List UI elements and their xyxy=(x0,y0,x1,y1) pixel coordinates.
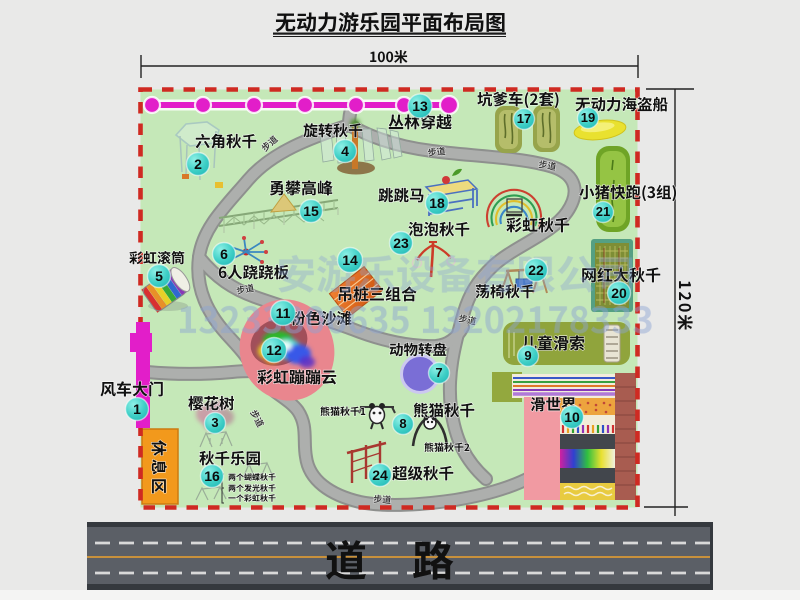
svg-text:18: 18 xyxy=(429,195,445,211)
svg-text:19: 19 xyxy=(581,110,595,125)
svg-text:1: 1 xyxy=(133,401,141,417)
svg-text:10: 10 xyxy=(564,409,580,425)
svg-text:8: 8 xyxy=(399,416,406,431)
svg-text:20: 20 xyxy=(611,285,627,301)
svg-text:12: 12 xyxy=(266,342,282,358)
svg-text:21: 21 xyxy=(596,204,610,219)
svg-text:2: 2 xyxy=(194,156,202,172)
svg-text:11: 11 xyxy=(276,305,291,321)
svg-text:14: 14 xyxy=(342,252,358,268)
svg-text:17: 17 xyxy=(517,111,531,126)
svg-text:6: 6 xyxy=(220,246,228,262)
svg-text:16: 16 xyxy=(204,468,220,484)
svg-text:4: 4 xyxy=(341,143,349,159)
svg-text:13: 13 xyxy=(412,98,428,114)
svg-text:7: 7 xyxy=(435,365,442,380)
svg-text:24: 24 xyxy=(372,467,388,483)
svg-text:23: 23 xyxy=(393,235,409,251)
svg-text:9: 9 xyxy=(524,348,531,363)
svg-text:3: 3 xyxy=(211,415,218,430)
svg-text:15: 15 xyxy=(303,203,319,219)
svg-text:5: 5 xyxy=(155,268,163,284)
svg-text:22: 22 xyxy=(528,262,544,278)
